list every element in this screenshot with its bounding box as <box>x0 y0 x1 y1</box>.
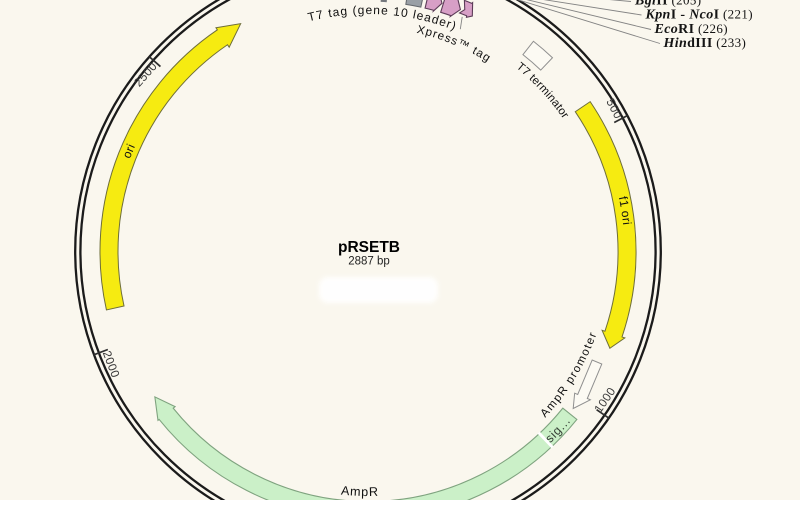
svg-text:KpnI - NcoI (221): KpnI - NcoI (221) <box>645 7 753 23</box>
svg-text:AmpR: AmpR <box>340 484 379 499</box>
svg-text:2887 bp: 2887 bp <box>348 256 390 268</box>
svg-text:pRSETB: pRSETB <box>338 239 400 256</box>
svg-text:HindIII (233): HindIII (233) <box>663 35 747 51</box>
